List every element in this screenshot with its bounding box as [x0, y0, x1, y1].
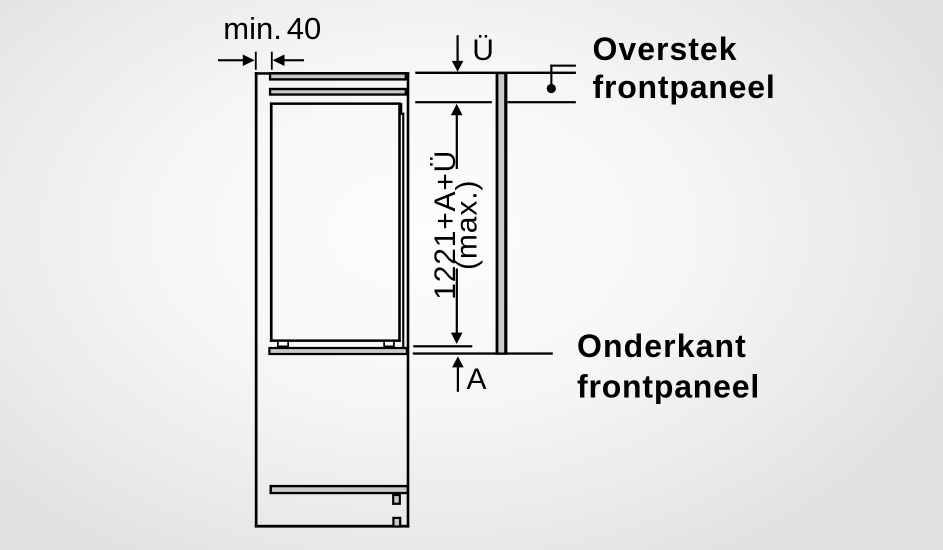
svg-text:frontpaneel: frontpaneel [593, 69, 776, 105]
svg-text:Ü: Ü [472, 34, 494, 67]
svg-text:(max.): (max.) [451, 180, 484, 270]
svg-text:40: 40 [287, 11, 321, 46]
svg-text:min.: min. [223, 11, 282, 46]
svg-text:A: A [467, 363, 487, 396]
svg-text:frontpaneel: frontpaneel [577, 368, 760, 404]
svg-text:Onderkant: Onderkant [577, 328, 747, 364]
svg-text:Overstek: Overstek [593, 31, 738, 67]
